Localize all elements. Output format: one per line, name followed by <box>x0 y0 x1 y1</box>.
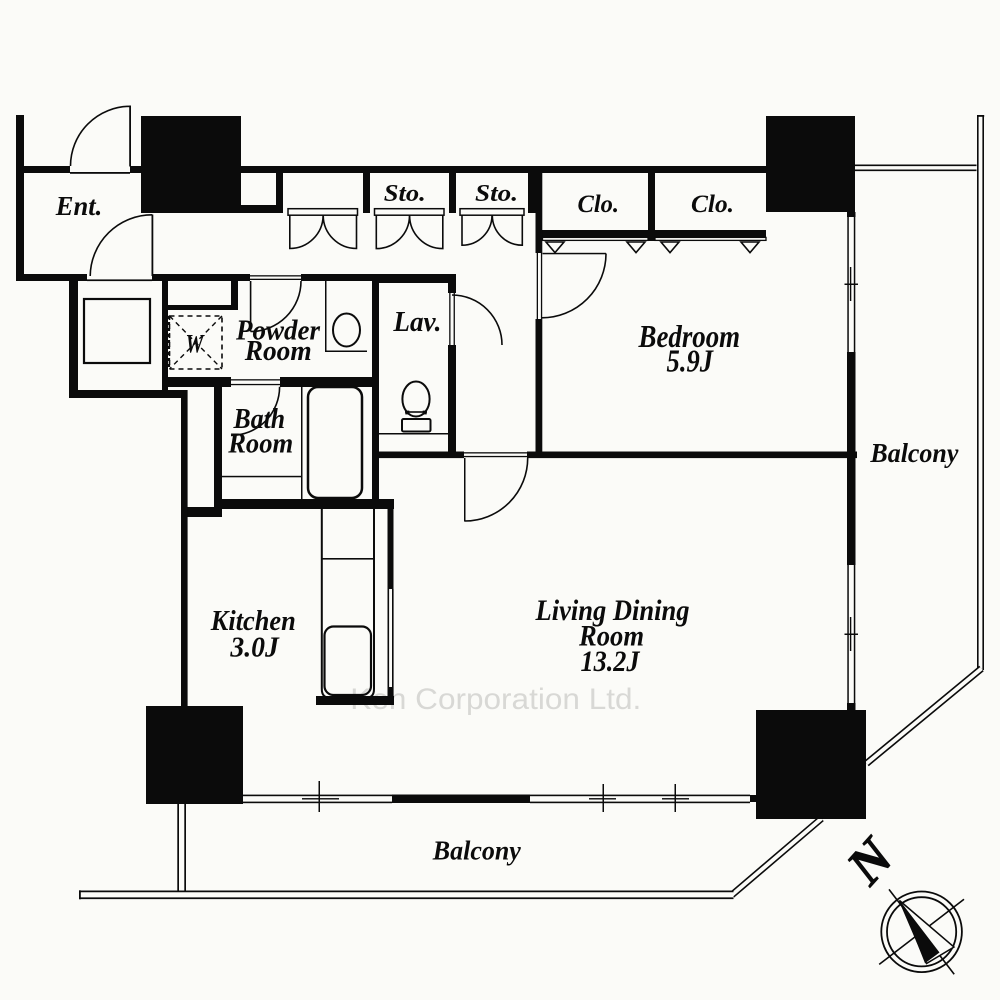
svg-text:3.0J: 3.0J <box>229 631 280 663</box>
svg-text:Room: Room <box>244 336 312 367</box>
svg-text:Room: Room <box>227 429 293 460</box>
svg-text:Ent.: Ent. <box>55 190 102 221</box>
svg-text:5.9J: 5.9J <box>667 343 714 379</box>
svg-text:Clo.: Clo. <box>691 191 734 218</box>
svg-text:13.2J: 13.2J <box>581 646 641 678</box>
svg-text:Clo.: Clo. <box>578 191 620 218</box>
svg-text:Sto.: Sto. <box>475 180 518 207</box>
svg-text:Sto.: Sto. <box>384 180 426 207</box>
svg-text:Lav.: Lav. <box>392 306 441 338</box>
svg-text:Balcony: Balcony <box>432 836 522 866</box>
svg-text:W: W <box>185 330 205 359</box>
svg-text:Balcony: Balcony <box>869 438 959 468</box>
